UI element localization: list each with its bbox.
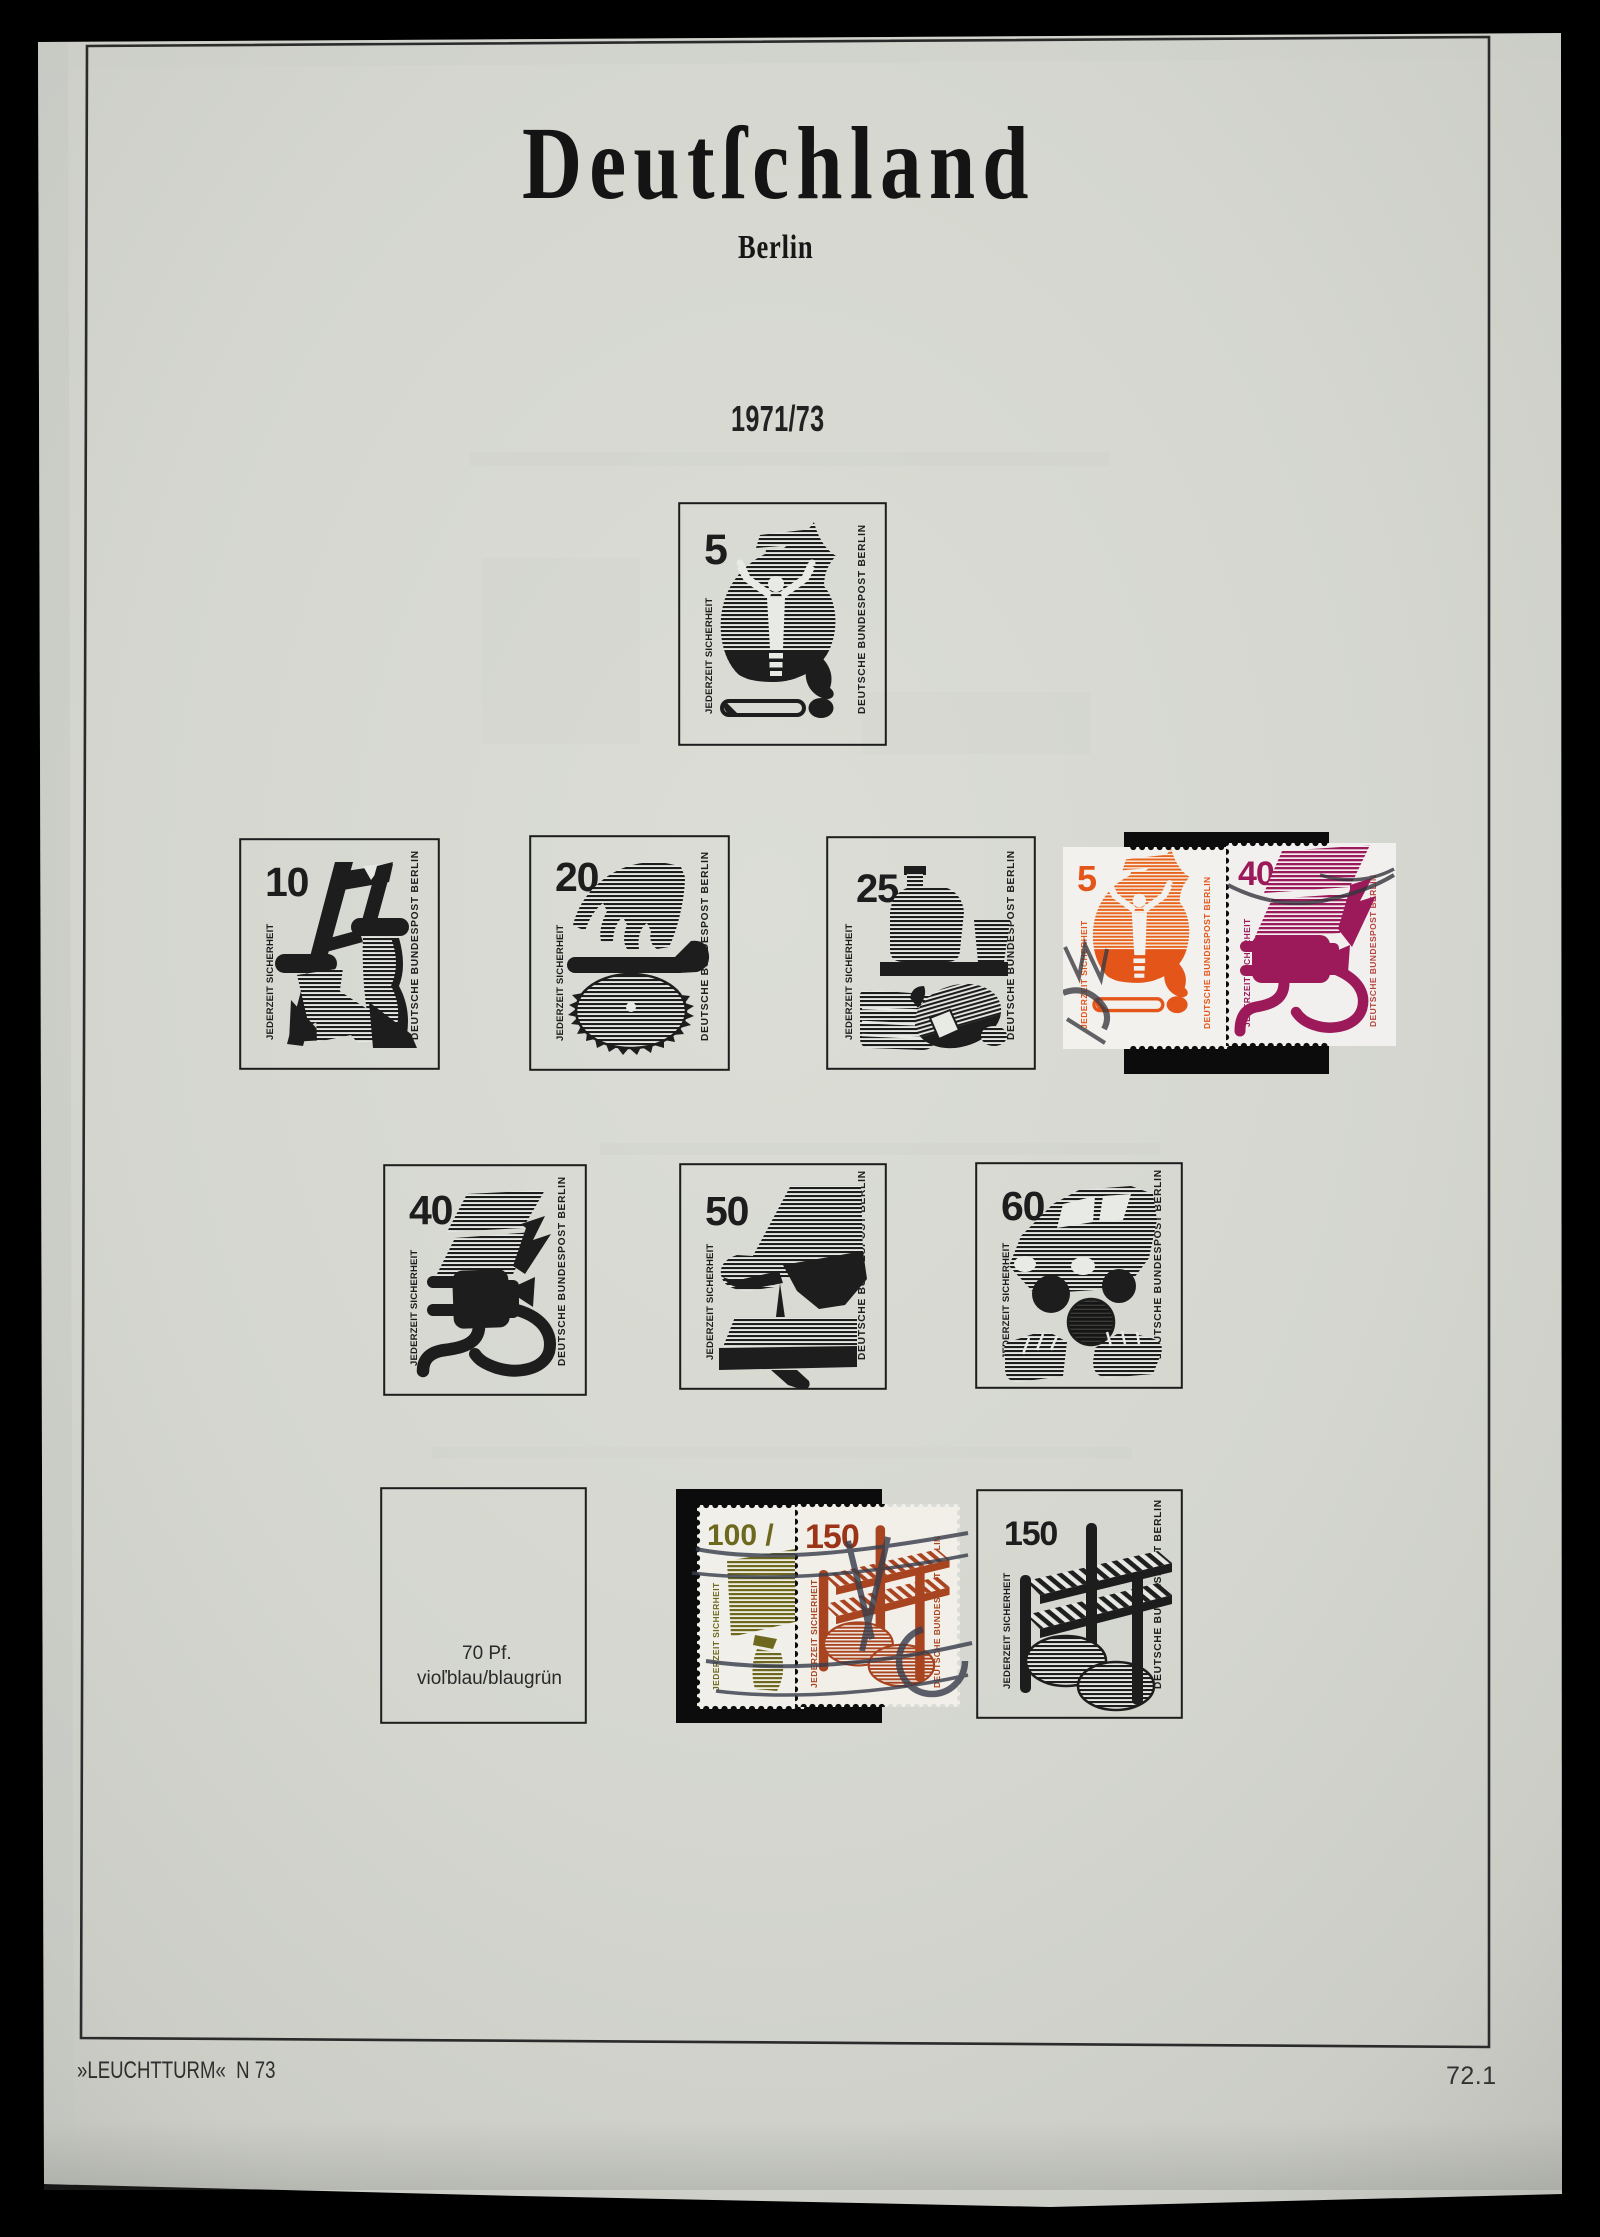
svg-text:DEUTSCHE BUNDESPOST BERLIN: DEUTSCHE BUNDESPOST BERLIN — [1202, 876, 1212, 1029]
svg-text:40: 40 — [409, 1187, 453, 1233]
svg-text:150: 150 — [1004, 1515, 1057, 1553]
svg-text:50: 50 — [705, 1188, 749, 1234]
svg-text:5: 5 — [1077, 858, 1097, 899]
svg-text:JEDERZEIT SICHERHEIT: JEDERZEIT SICHERHEIT — [555, 925, 566, 1041]
svg-text:JEDERZEIT SICHERHEIT: JEDERZEIT SICHERHEIT — [704, 598, 715, 714]
svg-text:DEUTSCHE BUNDESPOST BERLIN: DEUTSCHE BUNDESPOST BERLIN — [1153, 1169, 1164, 1359]
svg-text:JEDERZEIT SICHERHEIT: JEDERZEIT SICHERHEIT — [844, 924, 855, 1040]
svg-text:DEUTSCHE BUNDESPOST BERLIN: DEUTSCHE BUNDESPOST BERLIN — [1006, 850, 1017, 1040]
svg-text:JEDERZEIT SICHERHEIT: JEDERZEIT SICHERHEIT — [1002, 1573, 1013, 1689]
svg-text:JEDERZEIT SICHERHEIT: JEDERZEIT SICHERHEIT — [705, 1244, 716, 1360]
svg-text:DEUTSCHE BUNDESPOST BERLIN: DEUTSCHE BUNDESPOST BERLIN — [410, 850, 421, 1040]
svg-text:DEUTSCHE BUNDESPOST BERLIN: DEUTSCHE BUNDESPOST BERLIN — [557, 1176, 568, 1366]
svg-text:JEDERZEIT SICHERHEIT: JEDERZEIT SICHERHEIT — [265, 924, 276, 1040]
svg-text:5: 5 — [704, 526, 727, 574]
svg-text:JEDERZEIT SICHERHEIT: JEDERZEIT SICHERHEIT — [409, 1250, 420, 1366]
svg-text:DEUTSCHE BUNDESPOST BERLIN: DEUTSCHE BUNDESPOST BERLIN — [857, 524, 868, 714]
svg-text:10: 10 — [265, 859, 309, 905]
svg-text:vioľblau/blaugrün: vioľblau/blaugrün — [417, 1668, 562, 1689]
svg-text:70 Pf.: 70 Pf. — [462, 1643, 512, 1664]
